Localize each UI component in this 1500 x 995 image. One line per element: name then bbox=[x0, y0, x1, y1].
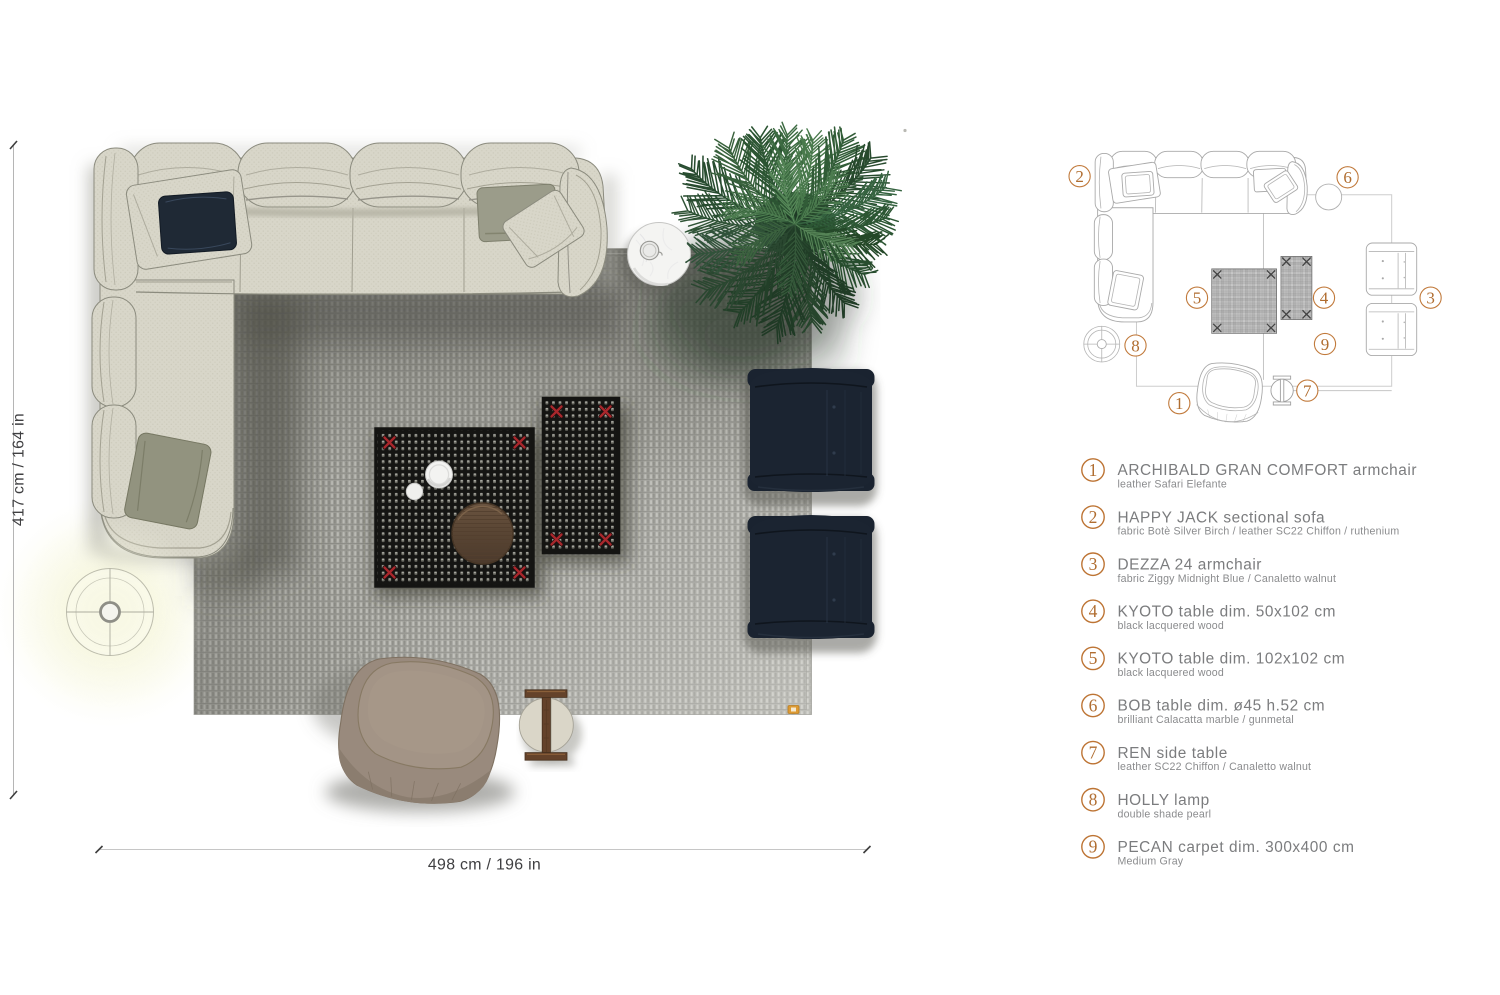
svg-text:417 cm / 164 in: 417 cm / 164 in bbox=[11, 413, 28, 526]
svg-text:black lacquered wood: black lacquered wood bbox=[1118, 620, 1224, 632]
svg-text:2: 2 bbox=[1075, 167, 1084, 186]
svg-text:9: 9 bbox=[1321, 335, 1330, 354]
svg-text:HAPPY JACK sectional sofa: HAPPY JACK sectional sofa bbox=[1118, 509, 1326, 526]
svg-text:8: 8 bbox=[1089, 790, 1098, 810]
svg-text:Medium Gray: Medium Gray bbox=[1118, 855, 1184, 867]
svg-text:5: 5 bbox=[1193, 289, 1202, 308]
svg-text:leather Safari Elefante: leather Safari Elefante bbox=[1118, 479, 1227, 491]
svg-text:6: 6 bbox=[1343, 168, 1352, 187]
svg-text:7: 7 bbox=[1089, 742, 1098, 762]
svg-text:6: 6 bbox=[1089, 695, 1098, 715]
svg-text:double shade pearl: double shade pearl bbox=[1118, 808, 1212, 820]
svg-text:BOB table dim. ø45 h.52 cm: BOB table dim. ø45 h.52 cm bbox=[1118, 698, 1326, 715]
svg-text:1: 1 bbox=[1089, 460, 1098, 480]
svg-text:3: 3 bbox=[1089, 554, 1098, 574]
svg-text:leather SC22 Chiffon / Canalet: leather SC22 Chiffon / Canaletto walnut bbox=[1118, 761, 1312, 773]
svg-text:4: 4 bbox=[1089, 601, 1098, 621]
svg-text:3: 3 bbox=[1426, 289, 1435, 308]
svg-text:ARCHIBALD GRAN COMFORT armchai: ARCHIBALD GRAN COMFORT armchair bbox=[1118, 462, 1418, 479]
svg-text:7: 7 bbox=[1303, 381, 1312, 400]
svg-text:4: 4 bbox=[1320, 289, 1329, 308]
svg-text:REN side table: REN side table bbox=[1118, 745, 1228, 762]
svg-text:9: 9 bbox=[1089, 837, 1098, 857]
svg-text:KYOTO table dim. 102x102 cm: KYOTO table dim. 102x102 cm bbox=[1118, 651, 1346, 668]
svg-text:fabric Botè Silver Birch / lea: fabric Botè Silver Birch / leather SC22 … bbox=[1118, 526, 1400, 538]
svg-text:498 cm / 196 in: 498 cm / 196 in bbox=[428, 857, 541, 874]
svg-text:black lacquered wood: black lacquered wood bbox=[1118, 667, 1224, 679]
svg-text:5: 5 bbox=[1089, 648, 1098, 668]
svg-text:fabric Ziggy Midnight Blue / C: fabric Ziggy Midnight Blue / Canaletto w… bbox=[1118, 573, 1337, 585]
svg-text:KYOTO table dim. 50x102 cm: KYOTO table dim. 50x102 cm bbox=[1118, 604, 1336, 621]
svg-text:8: 8 bbox=[1131, 336, 1140, 355]
svg-text:2: 2 bbox=[1089, 507, 1098, 527]
svg-text:DEZZA 24 armchair: DEZZA 24 armchair bbox=[1118, 556, 1262, 573]
svg-text:brilliant Calacatta marble / g: brilliant Calacatta marble / gunmetal bbox=[1118, 714, 1294, 726]
svg-text:1: 1 bbox=[1175, 394, 1184, 413]
svg-text:PECAN carpet dim. 300x400 cm: PECAN carpet dim. 300x400 cm bbox=[1118, 839, 1355, 856]
svg-text:HOLLY lamp: HOLLY lamp bbox=[1118, 792, 1210, 809]
